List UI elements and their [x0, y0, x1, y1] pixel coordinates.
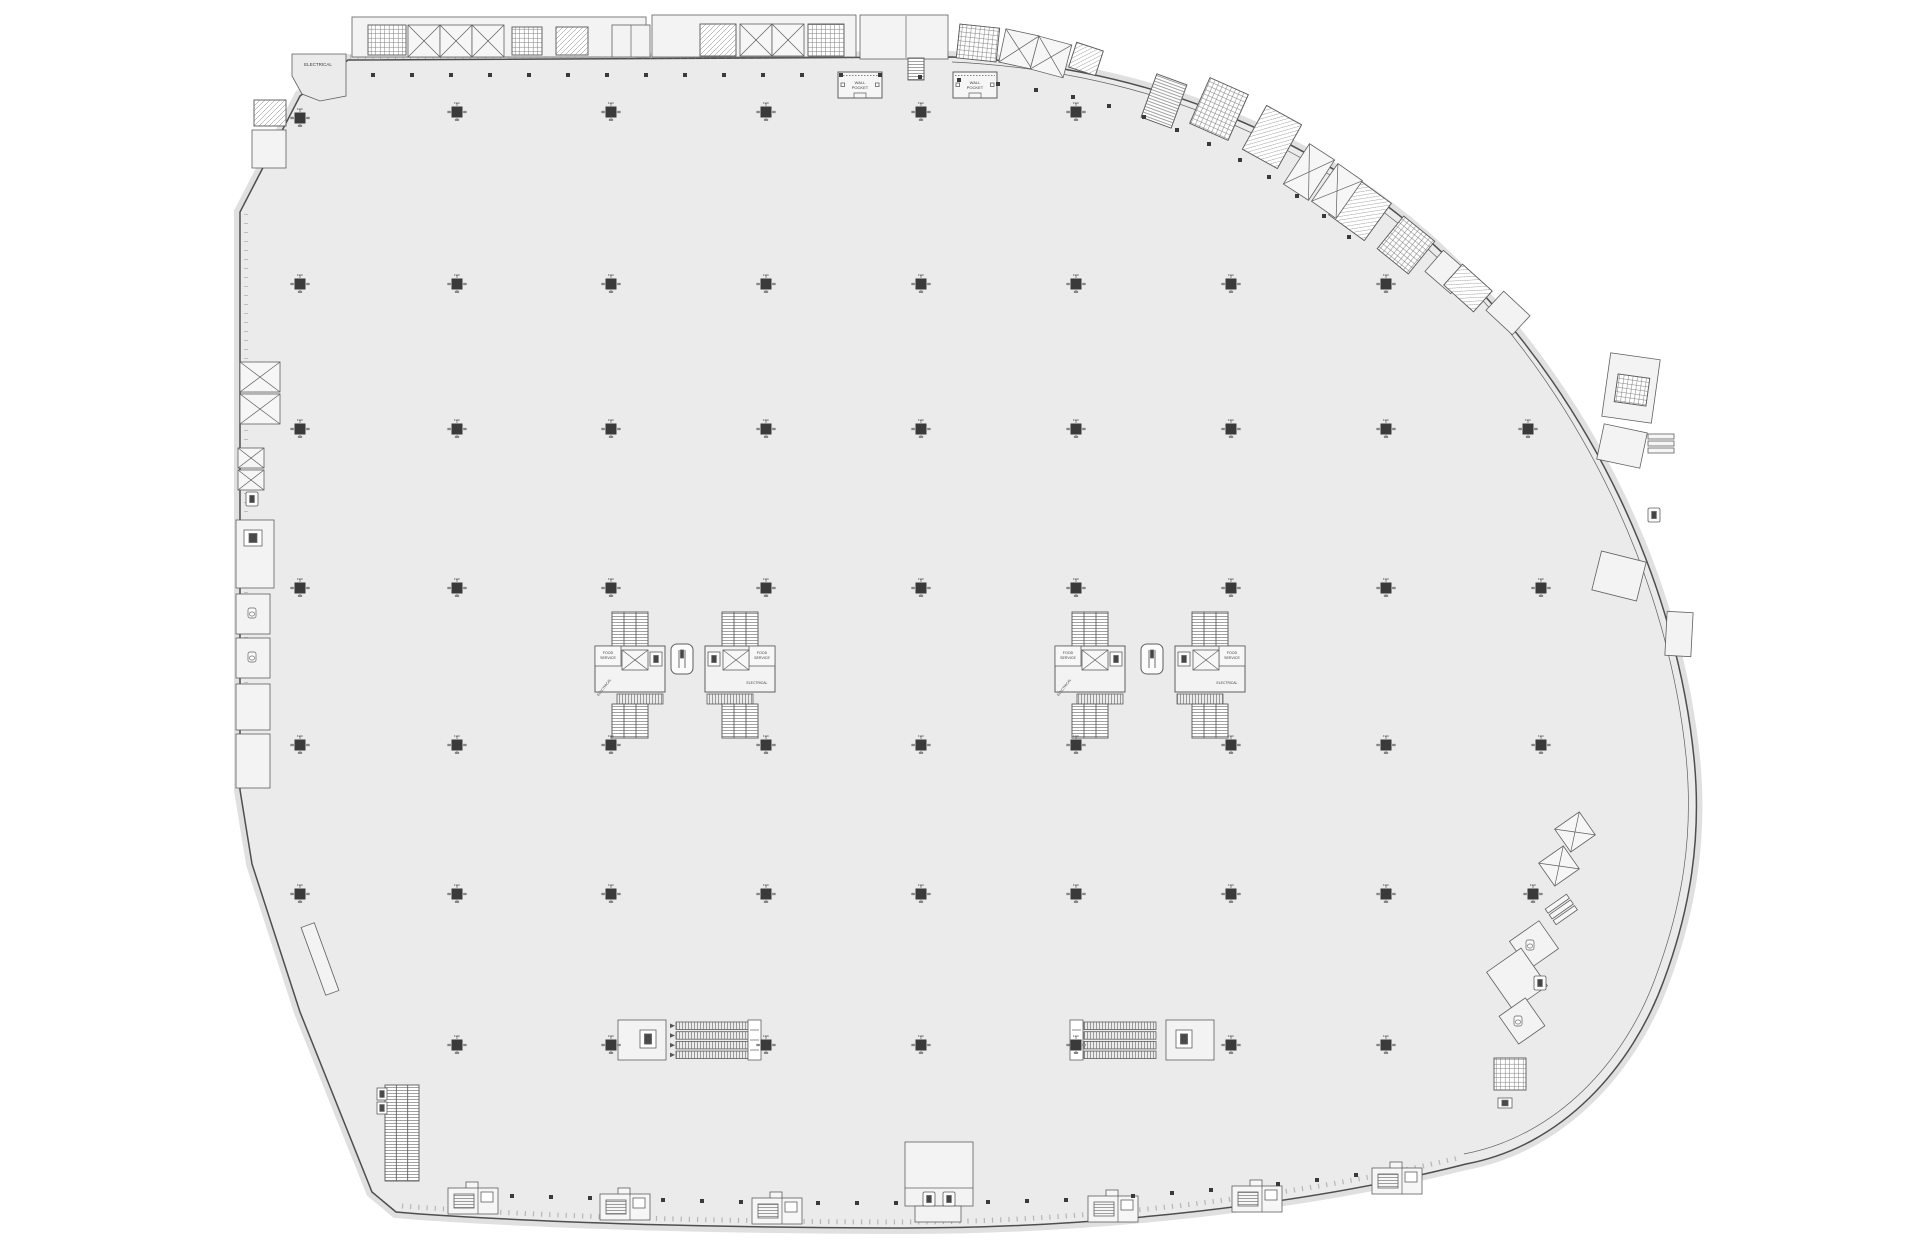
- column-tick-text: [928, 744, 931, 746]
- room-label: FHC: [1538, 734, 1545, 738]
- column-tick-text: [609, 436, 613, 438]
- column-tick-text: [298, 436, 302, 438]
- shaft-xbox: [238, 470, 264, 490]
- column-tick-text: [298, 125, 302, 127]
- column-tick-text: [1377, 893, 1380, 895]
- room-label: FHC: [454, 1034, 461, 1038]
- column-square: [1381, 740, 1392, 751]
- equipment-box: [1498, 1098, 1512, 1108]
- room-label: FHC: [1228, 1034, 1235, 1038]
- perimeter-room: [236, 734, 270, 788]
- column-tick-text: [1238, 283, 1241, 285]
- column-square: [761, 889, 772, 900]
- room-label: FHC: [297, 734, 304, 738]
- grid-dot: [683, 73, 687, 77]
- column-tick-text: [773, 1044, 776, 1046]
- room-label: FHC: [1383, 418, 1390, 422]
- pocket-jamb: [956, 83, 960, 87]
- column-tick-text: [757, 744, 760, 746]
- column-tick-text: [618, 111, 621, 113]
- vestibule-room: [633, 1198, 645, 1208]
- column-tick-text: [609, 291, 613, 293]
- column-tick-text: [757, 111, 760, 113]
- grid-dot: [816, 1201, 820, 1205]
- room-label: FOOD: [1227, 651, 1238, 655]
- elevator-icon: [943, 1192, 955, 1206]
- vestibule-room: [481, 1192, 493, 1202]
- column-tick-text: [1539, 752, 1543, 754]
- room-label: FHC: [454, 883, 461, 887]
- shaft-xbox: [238, 448, 264, 468]
- column-tick-text: [298, 901, 302, 903]
- column-tick-text: [609, 595, 613, 597]
- grid-dot: [878, 73, 882, 77]
- toilet-icon: [248, 652, 256, 662]
- equipment-glyph: [1180, 1034, 1187, 1044]
- column-tick-text: [928, 428, 931, 430]
- column-square: [761, 107, 772, 118]
- column-tick-text: [602, 111, 605, 113]
- room-label: SERVICE: [754, 656, 770, 660]
- room-label: FHC: [1228, 418, 1235, 422]
- column-square: [606, 1040, 617, 1051]
- room-label: FHC: [918, 273, 925, 277]
- escalator-treads: [1072, 612, 1108, 646]
- escalator-strip: [676, 1032, 748, 1040]
- column-tick-text: [912, 744, 915, 746]
- column-tick-text: [1393, 1044, 1396, 1046]
- column-tick-text: [764, 1052, 768, 1054]
- toilet-icon: [248, 608, 256, 618]
- column-tick-text: [1384, 1052, 1388, 1054]
- column-tick-text: [919, 752, 923, 754]
- room-label: FHC: [454, 577, 461, 581]
- column-square: [606, 889, 617, 900]
- column-tick-text: [1067, 1044, 1070, 1046]
- grid-dot: [1207, 142, 1211, 146]
- pocket-jamb: [841, 83, 845, 87]
- room-label: ELECTRICAL: [1217, 681, 1238, 685]
- core-elevator-glyph: [654, 656, 659, 663]
- shaft-xbox: [440, 25, 472, 57]
- column-square: [1226, 583, 1237, 594]
- column-tick-text: [1067, 428, 1070, 430]
- column-tick-text: [757, 1044, 760, 1046]
- grid-dot: [1295, 194, 1299, 198]
- column-tick-text: [912, 893, 915, 895]
- grid-dot: [986, 1200, 990, 1204]
- escalator-strip: [1084, 1041, 1156, 1049]
- room-label: FHC: [1383, 734, 1390, 738]
- room-label: SERVICE: [1224, 656, 1240, 660]
- column-square: [295, 424, 306, 435]
- room-label: FHC: [918, 883, 925, 887]
- room-label: FHC: [1383, 273, 1390, 277]
- column-tick-text: [1074, 291, 1078, 293]
- room-label: FHC: [1383, 577, 1390, 581]
- column-tick-text: [764, 436, 768, 438]
- column-tick-text: [912, 428, 915, 430]
- column-square: [761, 1040, 772, 1051]
- room-label: FHC: [608, 273, 615, 277]
- shaft-xbox: [240, 394, 280, 424]
- escalator-side-strip: [748, 1020, 761, 1060]
- column-tick-text: [919, 119, 923, 121]
- column-tick-text: [1377, 283, 1380, 285]
- column-tick-text: [1384, 752, 1388, 754]
- room-label: FHC: [1073, 883, 1080, 887]
- room-label: FHC: [1383, 1034, 1390, 1038]
- grid-dot: [449, 73, 453, 77]
- column-tick-text: [1526, 436, 1530, 438]
- column-tick-text: [1377, 1044, 1380, 1046]
- column-tick-text: [609, 1052, 613, 1054]
- column-tick-text: [928, 111, 931, 113]
- column-tick-text: [764, 595, 768, 597]
- column-square: [916, 107, 927, 118]
- column-tick-text: [455, 436, 459, 438]
- column-tick-text: [1083, 1044, 1086, 1046]
- column-tick-text: [1067, 744, 1070, 746]
- column-tick-text: [1067, 283, 1070, 285]
- column-tick-text: [1532, 587, 1535, 589]
- column-square: [916, 583, 927, 594]
- column-tick-text: [1083, 587, 1086, 589]
- column-square: [916, 1040, 927, 1051]
- grid-dot: [588, 1196, 592, 1200]
- room-label: ELECTRICAL: [304, 62, 332, 67]
- column-tick-text: [1074, 901, 1078, 903]
- grid-dot: [1322, 214, 1326, 218]
- grid-dot: [1131, 1194, 1135, 1198]
- column-tick-text: [464, 893, 467, 895]
- grid-dot: [410, 73, 414, 77]
- room-label: FHC: [454, 418, 461, 422]
- mech-room-hatch: [808, 24, 844, 56]
- elevator-icon: [923, 1192, 935, 1206]
- room-label: FHC: [763, 734, 770, 738]
- column-square: [295, 113, 306, 124]
- column-tick-text: [1074, 595, 1078, 597]
- column-tick-text: [291, 893, 294, 895]
- column-tick-text: [912, 283, 915, 285]
- column-tick-text: [1229, 595, 1233, 597]
- column-square: [452, 424, 463, 435]
- room-label: FHC: [918, 101, 925, 105]
- lobby-outline: [1141, 644, 1163, 674]
- column-square: [1071, 889, 1082, 900]
- room-label: FHC: [918, 1034, 925, 1038]
- elevator-icon: [1534, 976, 1546, 990]
- equipment-box: [640, 1030, 656, 1048]
- lobby-glyph: [681, 650, 684, 658]
- column-tick-text: [1548, 744, 1551, 746]
- grid-dot: [527, 73, 531, 77]
- core-elevator-glyph: [1114, 656, 1119, 663]
- shaft-xbox: [772, 24, 804, 56]
- column-tick-text: [773, 428, 776, 430]
- column-square: [1071, 583, 1082, 594]
- grid-dot: [722, 73, 726, 77]
- grid-dot: [996, 82, 1000, 86]
- column-tick-text: [773, 893, 776, 895]
- mech-room-hatch: [1494, 1058, 1526, 1090]
- core-cross-escalator: [617, 694, 663, 704]
- room-label: FHC: [608, 1034, 615, 1038]
- perimeter-room: [905, 1142, 973, 1206]
- equipment-box: [377, 1102, 387, 1114]
- column-tick-text: [912, 587, 915, 589]
- column-tick-text: [1222, 283, 1225, 285]
- column-tick-text: [757, 587, 760, 589]
- column-tick-text: [1524, 893, 1527, 895]
- column-tick-text: [1384, 595, 1388, 597]
- grid-dot: [761, 73, 765, 77]
- toilet-icon: [1514, 1016, 1522, 1026]
- column-tick-text: [448, 428, 451, 430]
- grid-dot: [1034, 88, 1038, 92]
- column-tick-text: [464, 1044, 467, 1046]
- column-square: [761, 279, 772, 290]
- column-tick-text: [602, 283, 605, 285]
- room-label: SERVICE: [600, 656, 616, 660]
- perimeter-room: [236, 684, 270, 730]
- column-tick-text: [1083, 111, 1086, 113]
- core-cross-escalator: [707, 694, 753, 704]
- column-tick-text: [291, 744, 294, 746]
- column-tick-text: [1222, 1044, 1225, 1046]
- column-tick-text: [1238, 587, 1241, 589]
- room-label: FHC: [1073, 273, 1080, 277]
- room-label: FHC: [608, 101, 615, 105]
- toilet-outline: [1514, 1016, 1522, 1026]
- room-label: FHC: [1228, 734, 1235, 738]
- column-tick-text: [298, 291, 302, 293]
- grid-dot: [661, 1198, 665, 1202]
- room-label: FHC: [297, 883, 304, 887]
- column-square: [452, 279, 463, 290]
- grid-dot: [1315, 1178, 1319, 1182]
- column-tick-text: [1548, 587, 1551, 589]
- toilet-outline: [248, 608, 256, 618]
- column-tick-text: [618, 587, 621, 589]
- column-square: [1528, 889, 1539, 900]
- room-label: FHC: [297, 107, 304, 111]
- escalator-strip: [1084, 1051, 1156, 1059]
- column-square: [452, 1040, 463, 1051]
- column-tick-text: [912, 1044, 915, 1046]
- grid-dot: [510, 1194, 514, 1198]
- column-tick-text: [928, 283, 931, 285]
- grid-dot: [1064, 1198, 1068, 1202]
- column-tick-text: [919, 291, 923, 293]
- column-square: [606, 583, 617, 594]
- room-label: FHC: [454, 101, 461, 105]
- column-square: [916, 740, 927, 751]
- column-tick-text: [291, 283, 294, 285]
- column-square: [606, 424, 617, 435]
- room-label: FOOD: [1063, 651, 1074, 655]
- escalator-bank-vertical: [385, 1085, 419, 1181]
- column-square: [1381, 424, 1392, 435]
- louver-slat: [1648, 434, 1674, 439]
- column-tick-text: [1377, 428, 1380, 430]
- column-tick-text: [764, 752, 768, 754]
- room-label: FOOD: [603, 651, 614, 655]
- vestibule-stair: [606, 1200, 626, 1214]
- column-square: [295, 583, 306, 594]
- column-tick-text: [1074, 1052, 1078, 1054]
- room-label: FHC: [1073, 101, 1080, 105]
- room-label: FHC: [918, 418, 925, 422]
- column-square: [295, 740, 306, 751]
- wall-pocket: WALLPOCKET: [953, 72, 997, 98]
- column-square: [916, 279, 927, 290]
- grid-dot: [1071, 95, 1075, 99]
- equipment-glyph: [1502, 1100, 1508, 1106]
- column-tick-text: [307, 587, 310, 589]
- column-tick-text: [1083, 283, 1086, 285]
- column-tick-text: [1519, 428, 1522, 430]
- column-square: [295, 279, 306, 290]
- equipment-glyph: [644, 1034, 651, 1044]
- vestibule-room: [1265, 1190, 1277, 1200]
- column-tick-text: [455, 119, 459, 121]
- column-tick-text: [307, 893, 310, 895]
- room-label: POCKET: [852, 85, 869, 90]
- column-tick-text: [1531, 901, 1535, 903]
- room-label: FHC: [1525, 418, 1532, 422]
- grid-dot: [1238, 158, 1242, 162]
- column-tick-text: [1539, 595, 1543, 597]
- column-tick-text: [1393, 744, 1396, 746]
- grid-dot: [1025, 1199, 1029, 1203]
- column-square: [1071, 424, 1082, 435]
- column-tick-text: [919, 901, 923, 903]
- column-tick-text: [764, 119, 768, 121]
- column-tick-text: [1229, 1052, 1233, 1054]
- column-tick-text: [455, 901, 459, 903]
- column-tick-text: [1384, 901, 1388, 903]
- lobby-glyph: [1151, 650, 1154, 658]
- column-square: [606, 107, 617, 118]
- column-tick-text: [919, 436, 923, 438]
- column-tick-text: [291, 117, 294, 119]
- column-tick-text: [1393, 893, 1396, 895]
- column-tick-text: [464, 111, 467, 113]
- column-tick-text: [455, 752, 459, 754]
- elevator-glyph: [927, 1196, 932, 1203]
- mech-room-hatch: [700, 24, 736, 56]
- column-tick-text: [1384, 436, 1388, 438]
- column-square: [1381, 279, 1392, 290]
- column-tick-text: [1229, 752, 1233, 754]
- column-tick-text: [928, 1044, 931, 1046]
- shaft-xbox: [740, 24, 772, 56]
- grid-dot: [918, 75, 922, 79]
- column-tick-text: [1393, 587, 1396, 589]
- grid-dot: [644, 73, 648, 77]
- column-square: [606, 279, 617, 290]
- room-label: FHC: [297, 418, 304, 422]
- column-tick-text: [455, 1052, 459, 1054]
- room-label: FHC: [1383, 883, 1390, 887]
- column-tick-text: [307, 428, 310, 430]
- column-tick-text: [1532, 744, 1535, 746]
- escalator-treads: [1192, 704, 1228, 738]
- column-tick-text: [1067, 111, 1070, 113]
- column-square: [1381, 583, 1392, 594]
- shaft-xbox: [240, 362, 280, 392]
- column-tick-text: [1384, 291, 1388, 293]
- column-tick-text: [602, 893, 605, 895]
- column-tick-text: [1238, 744, 1241, 746]
- elevator-glyph: [1538, 980, 1543, 987]
- drawing-viewport: ELECTRICALELECTRICALELECTRICALELECTRICAL…: [0, 0, 1920, 1242]
- column-tick-text: [928, 587, 931, 589]
- grid-dot: [549, 1195, 553, 1199]
- column-square: [1381, 1040, 1392, 1051]
- room-label: FHC: [763, 101, 770, 105]
- louver-slats: [1648, 434, 1674, 453]
- column-square: [1071, 1040, 1082, 1051]
- equipment-glyph: [380, 1105, 384, 1112]
- column-tick-text: [1393, 283, 1396, 285]
- column-tick-text: [764, 901, 768, 903]
- column-tick-text: [1229, 291, 1233, 293]
- vestibule-room: [785, 1202, 797, 1212]
- column-tick-text: [602, 744, 605, 746]
- column-tick-text: [609, 901, 613, 903]
- column-tick-text: [1074, 436, 1078, 438]
- toilet-outline: [248, 652, 256, 662]
- room-label: FHC: [1228, 577, 1235, 581]
- column-square: [1071, 740, 1082, 751]
- grid-dot: [957, 78, 961, 82]
- room-label: FHC: [454, 734, 461, 738]
- column-square: [916, 424, 927, 435]
- column-tick-text: [618, 428, 621, 430]
- room-label: FHC: [608, 734, 615, 738]
- column-square: [452, 107, 463, 118]
- equipment-glyph: [380, 1091, 384, 1098]
- vestibule-stair: [1094, 1202, 1114, 1216]
- perimeter-room: [915, 1206, 961, 1222]
- column-tick-text: [455, 291, 459, 293]
- column-tick-text: [307, 283, 310, 285]
- grid-dot: [1170, 1191, 1174, 1195]
- column-tick-text: [464, 744, 467, 746]
- column-tick-text: [464, 283, 467, 285]
- mech-room-hatch: [254, 100, 286, 126]
- column-tick-text: [618, 283, 621, 285]
- equipment-box: [244, 530, 262, 546]
- column-tick-text: [1074, 752, 1078, 754]
- louver-slat: [1648, 448, 1674, 453]
- mech-room-hatch: [368, 25, 406, 55]
- room-label: FHC: [608, 883, 615, 887]
- column-tick-text: [298, 595, 302, 597]
- escalator-treads: [722, 612, 758, 646]
- escalator-treads: [1192, 612, 1228, 646]
- column-tick-text: [1083, 744, 1086, 746]
- room-label: FOOD: [757, 651, 768, 655]
- core-cross-escalator: [1177, 694, 1223, 704]
- escalator-treads: [612, 704, 648, 738]
- column-tick-text: [1222, 893, 1225, 895]
- room-label: FHC: [1530, 883, 1537, 887]
- grid-dot: [1175, 128, 1179, 132]
